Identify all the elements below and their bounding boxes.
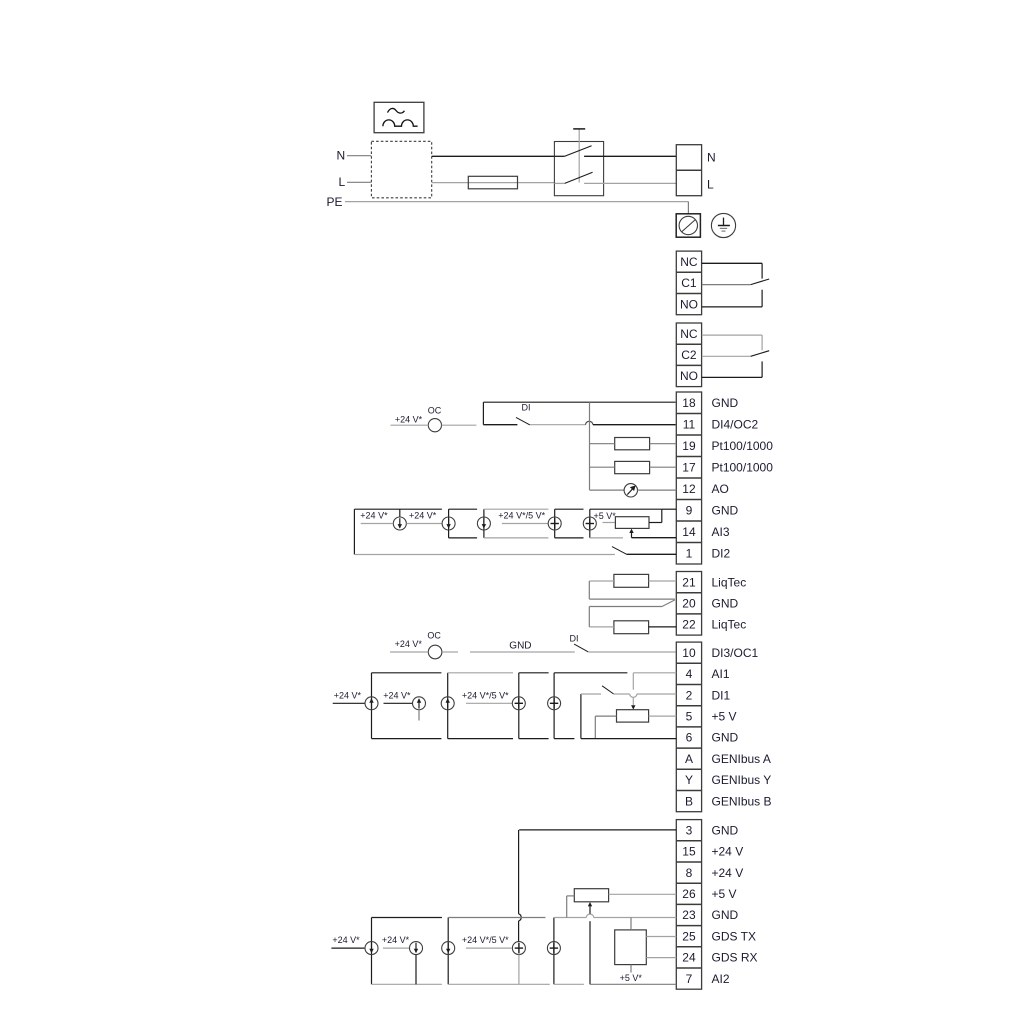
svg-text:14: 14 — [682, 525, 696, 539]
svg-text:OC: OC — [427, 631, 441, 641]
svg-text:+24 V: +24 V — [712, 845, 744, 859]
svg-text:+24 V*: +24 V* — [383, 690, 411, 700]
svg-text:Pt100/1000: Pt100/1000 — [712, 460, 774, 474]
svg-text:19: 19 — [682, 439, 696, 453]
svg-text:NC: NC — [680, 255, 698, 269]
svg-text:9: 9 — [686, 503, 693, 517]
svg-text:NC: NC — [680, 327, 698, 341]
svg-text:AI2: AI2 — [712, 972, 730, 986]
svg-text:L: L — [339, 175, 346, 189]
svg-text:3: 3 — [686, 823, 693, 837]
svg-text:+24 V*/5 V*: +24 V*/5 V* — [462, 690, 509, 700]
svg-text:+24 V*: +24 V* — [382, 935, 410, 945]
svg-text:GND: GND — [712, 597, 739, 611]
svg-text:8: 8 — [686, 866, 693, 880]
svg-text:C1: C1 — [681, 276, 697, 290]
svg-text:GND: GND — [712, 396, 739, 410]
svg-text:+5 V: +5 V — [712, 710, 737, 724]
svg-text:C2: C2 — [681, 348, 697, 362]
svg-text:+24 V*: +24 V* — [409, 511, 437, 521]
svg-text:DI: DI — [522, 402, 531, 412]
svg-text:DI3/OC1: DI3/OC1 — [712, 646, 759, 660]
svg-text:GDS TX: GDS TX — [712, 929, 756, 943]
svg-text:LiqTec: LiqTec — [712, 618, 747, 632]
svg-text:OC: OC — [428, 406, 442, 416]
svg-text:15: 15 — [682, 845, 696, 859]
svg-text:+24 V*: +24 V* — [332, 935, 360, 945]
svg-text:GND: GND — [509, 640, 531, 651]
svg-text:NO: NO — [680, 297, 698, 311]
svg-text:11: 11 — [683, 417, 696, 431]
svg-text:GENIbus A: GENIbus A — [712, 752, 771, 766]
svg-text:GND: GND — [712, 908, 739, 922]
svg-text:GENIbus B: GENIbus B — [712, 794, 772, 808]
svg-text:+5 V*: +5 V* — [620, 973, 643, 983]
svg-text:18: 18 — [682, 396, 696, 410]
svg-text:+24 V*/5 V*: +24 V*/5 V* — [462, 935, 509, 945]
svg-text:Pt100/1000: Pt100/1000 — [712, 439, 774, 453]
svg-text:+24 V: +24 V — [712, 866, 744, 880]
svg-text:7: 7 — [686, 972, 693, 986]
svg-text:N: N — [337, 149, 346, 163]
svg-text:+24 V*: +24 V* — [395, 414, 423, 424]
svg-text:22: 22 — [682, 618, 696, 632]
svg-text:+24 V*: +24 V* — [395, 639, 423, 649]
svg-text:A: A — [685, 752, 693, 766]
svg-text:AO: AO — [712, 482, 729, 496]
svg-text:DI: DI — [570, 634, 579, 644]
svg-text:+24 V*/5 V*: +24 V*/5 V* — [498, 511, 545, 521]
svg-text:Y: Y — [685, 773, 693, 787]
svg-text:NO: NO — [680, 369, 698, 383]
svg-text:AI3: AI3 — [712, 525, 730, 539]
svg-text:6: 6 — [686, 731, 693, 745]
svg-text:B: B — [685, 794, 693, 808]
svg-text:L: L — [707, 178, 714, 192]
svg-text:25: 25 — [682, 929, 696, 943]
svg-text:GDS RX: GDS RX — [712, 951, 758, 965]
svg-text:2: 2 — [686, 688, 693, 702]
svg-text:26: 26 — [682, 887, 696, 901]
svg-text:DI1: DI1 — [712, 688, 731, 702]
svg-text:GND: GND — [712, 731, 739, 745]
svg-text:23: 23 — [682, 908, 696, 922]
svg-text:GND: GND — [712, 503, 739, 517]
svg-text:17: 17 — [682, 460, 696, 474]
svg-text:DI4/OC2: DI4/OC2 — [712, 417, 759, 431]
svg-text:5: 5 — [686, 710, 693, 724]
svg-text:1: 1 — [686, 546, 693, 560]
svg-text:4: 4 — [686, 667, 693, 681]
svg-text:LiqTec: LiqTec — [712, 575, 747, 589]
svg-text:24: 24 — [682, 951, 696, 965]
svg-text:+24 V*: +24 V* — [334, 690, 362, 700]
svg-text:+5 V: +5 V — [712, 887, 737, 901]
svg-text:DI2: DI2 — [712, 546, 731, 560]
svg-text:20: 20 — [682, 597, 696, 611]
svg-text:N: N — [707, 150, 716, 164]
svg-text:21: 21 — [682, 575, 696, 589]
svg-text:12: 12 — [682, 482, 696, 496]
svg-text:AI1: AI1 — [712, 667, 730, 681]
svg-text:+24 V*: +24 V* — [360, 511, 388, 521]
svg-text:+5 V*: +5 V* — [594, 511, 617, 521]
svg-text:PE: PE — [327, 195, 343, 209]
svg-text:GND: GND — [712, 823, 739, 837]
svg-text:GENIbus Y: GENIbus Y — [712, 773, 772, 787]
svg-text:10: 10 — [682, 646, 696, 660]
